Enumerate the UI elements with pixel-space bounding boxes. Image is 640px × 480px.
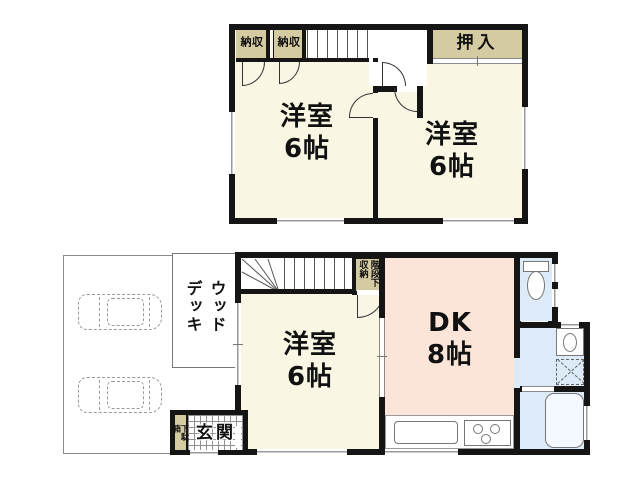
door-gap: [514, 358, 520, 388]
entrance-door: [190, 450, 218, 456]
window: [257, 449, 347, 455]
slide-tick: [477, 56, 478, 66]
kitchen-counter: [385, 415, 514, 449]
wall: [373, 86, 378, 93]
wall: [241, 289, 352, 294]
car-trunk-line: [149, 297, 150, 327]
washing-machine-space: [556, 359, 584, 385]
shoe-cabinet: 下駄箱: [175, 415, 188, 450]
room-name: 洋室: [247, 102, 367, 134]
bath-sliding-door: [522, 386, 554, 392]
wood-deck-label: ウッドデッキ: [181, 280, 229, 342]
toilet-bowl: [527, 271, 545, 300]
stairs-upper: [307, 30, 369, 58]
car-trunk-line: [149, 380, 150, 410]
car-2: [78, 374, 162, 416]
window-tick: [233, 344, 243, 345]
oshiire-label: 押入: [433, 33, 522, 54]
door-gap: [235, 426, 241, 448]
window: [552, 264, 558, 282]
room2-right-label: 洋室 6帖: [392, 120, 512, 183]
oshiire: 押入: [433, 30, 522, 58]
window: [277, 218, 344, 224]
stairs-lower-treads: [284, 258, 352, 292]
room1-label: 洋室 6帖: [250, 330, 370, 393]
wall: [417, 86, 423, 118]
wall: [265, 58, 279, 62]
kitchen-sink: [394, 421, 458, 444]
room-name: DK: [390, 308, 510, 340]
room-size: 8帖: [390, 340, 510, 372]
window: [385, 449, 458, 455]
room2-left-label: 洋室 6帖: [247, 102, 367, 165]
bathtub: [545, 393, 584, 448]
under-stair-storage-label: 階段下収納: [356, 260, 379, 290]
window: [229, 112, 235, 174]
room-size: 6帖: [250, 362, 370, 394]
closet-left-label: 収納: [239, 36, 262, 51]
room-size: 6帖: [247, 134, 367, 166]
car-hood-line: [99, 297, 100, 327]
wall: [379, 252, 385, 318]
window: [552, 289, 558, 307]
room-name: 洋室: [250, 330, 370, 362]
shoe-cabinet-label: 下駄箱: [173, 424, 189, 442]
car-1: [78, 291, 162, 333]
window: [522, 107, 528, 169]
stove: [464, 420, 511, 446]
basin-bowl: [563, 333, 577, 352]
burner: [473, 424, 483, 434]
burner: [481, 434, 491, 444]
wall: [373, 118, 378, 218]
window: [584, 406, 590, 440]
door-leaf: [279, 62, 280, 84]
car-cabin: [107, 381, 144, 409]
room-size: 6帖: [392, 152, 512, 184]
door-leaf: [382, 62, 383, 86]
wall: [373, 58, 378, 62]
car-hood-line: [99, 380, 100, 410]
wood-deck: ウッドデッキ: [172, 253, 237, 368]
wall: [300, 58, 370, 62]
door-leaf: [357, 295, 358, 318]
sliding-door: [379, 318, 385, 397]
room-name: 洋室: [392, 120, 512, 152]
stairs-winder-lines: [241, 258, 281, 293]
car-cabin: [107, 298, 144, 326]
burner: [490, 424, 500, 434]
floor-plan: ウッドデッキ 収納 収納 押入 洋室 6帖: [0, 0, 640, 480]
wash-basin: [556, 328, 584, 356]
door-leaf: [242, 62, 243, 86]
dk-label: DK 8帖: [390, 308, 510, 371]
closet-right-label: 収納: [276, 36, 299, 51]
window: [443, 218, 514, 224]
slide-tick: [377, 356, 387, 357]
